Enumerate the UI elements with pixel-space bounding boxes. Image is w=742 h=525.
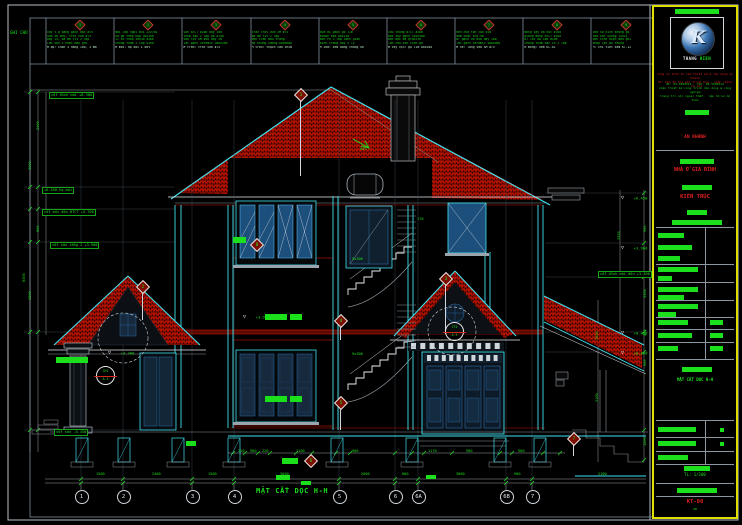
note-line: M ốp: chân 3 hàng 100, 3 mm: [47, 46, 113, 50]
level-marker: ▽ +0.450: [621, 325, 647, 341]
note-marker-diamond: 3: [211, 20, 222, 31]
field-bar: [710, 320, 723, 325]
note-marker-diamond: 4: [279, 20, 290, 31]
level-triangle-icon: ▽: [243, 314, 246, 320]
dim-label: 1200: [644, 437, 648, 446]
grid-bubble: 6A: [412, 490, 426, 504]
note-line: M: chi tiết xem KT-12: [593, 46, 659, 50]
dim-label: 3000: [456, 473, 465, 477]
field-bar: [680, 159, 714, 164]
note-cell: 9cửa sổ kính khung gỗhoa sắt vuông 14x14…: [593, 20, 659, 62]
elevation-note: cốt sân -0.450: [54, 429, 88, 436]
note-line: M mái: độ dốc i 60%: [115, 46, 181, 50]
dim-label: 9x300: [352, 258, 363, 262]
dim-label: 60%: [360, 148, 367, 152]
note-cell: 3sàn BTCT #200 dày 100thép sàn 2 lớp d8 …: [183, 20, 249, 62]
note-marker-diamond: 9: [620, 20, 631, 31]
grid-bubble: 6: [389, 490, 403, 504]
column-divider: [705, 420, 706, 464]
grid-bubble: 4: [228, 490, 242, 504]
drawing-category: KIẾN TRÚC: [654, 194, 736, 200]
field-bar: [658, 267, 698, 272]
dim-label: 3600: [280, 473, 289, 477]
column-divider: [705, 227, 706, 359]
field-bar: [658, 276, 672, 281]
dim-label: 1170: [428, 450, 437, 454]
field-bar: [682, 185, 712, 190]
note-cell: 6cầu thang BTCT #200bậc xây gạch 105x300…: [388, 20, 454, 62]
level-triangle-icon: ▽: [108, 350, 111, 356]
water-tank: [347, 174, 383, 198]
dim-label: 2000: [361, 473, 370, 477]
company-logo-text: THANG HIEN: [671, 56, 723, 61]
dim-label: 170: [417, 218, 424, 222]
elevation-note: +6.450 hạ mái: [42, 187, 74, 194]
dim-label: 2100: [596, 393, 600, 402]
field-bar: [658, 287, 698, 292]
field-bar: [684, 466, 710, 471]
row-separator: [656, 483, 734, 484]
row-separator: [656, 300, 734, 301]
company-logo-icon: K: [681, 22, 715, 56]
level-marker: ▽ +3.900: [243, 309, 269, 325]
note-marker-diamond: 1: [74, 20, 85, 31]
note-line: M móng: xem KC-01: [524, 46, 590, 50]
dim-label: 2400: [152, 473, 161, 477]
sheet-sub-number: 08: [654, 508, 736, 511]
row-separator: [656, 227, 734, 228]
dim-label: 2400: [37, 121, 41, 130]
company-info-green: đt: 04.5584512 - fax: 04.5584512nhận thi…: [657, 83, 733, 102]
elevation-note: cốt mái đón BTCT +5.700: [42, 209, 96, 216]
sheet-number: KT-08: [654, 499, 736, 505]
dim-label: 220: [262, 450, 269, 454]
note-marker-diamond: 7: [484, 20, 495, 31]
grid-bubble: 7: [526, 490, 540, 504]
grid-bubble: 1: [75, 490, 89, 504]
dim-label: 1500: [596, 331, 600, 340]
dim-label: 560: [518, 450, 525, 454]
field-bar: [658, 233, 684, 238]
row-separator: [656, 451, 734, 452]
note-marker-diamond: 2: [143, 20, 154, 31]
dim-label: 8300: [23, 273, 27, 282]
callout-leader: [300, 98, 301, 176]
dim-label: 3300: [644, 289, 648, 298]
dim-label: 3300: [29, 161, 33, 170]
field-bar: [658, 455, 688, 460]
dim-label: 220: [238, 450, 245, 454]
project-name: NHÀ Ở GIA ĐÌNH: [654, 168, 736, 174]
row-separator: [656, 282, 734, 283]
note-cell: 1xây t.g bằng gạch đặc #75vữa XM #50, tr…: [47, 20, 113, 62]
elevation-note: cốt đỉnh mái +8.300: [49, 92, 94, 99]
dim-label: 900: [352, 450, 359, 454]
level-triangle-icon: ▽: [621, 350, 624, 356]
drawing-title: MẶT CẮT DỌC H-H: [654, 378, 736, 382]
field-bar: [710, 333, 723, 338]
note-cell: 7nền nhà tôn cao 450đầm chặt k=0.90BT gạ…: [456, 20, 522, 62]
level-marker: ▽ +6.450: [621, 190, 647, 206]
notes-grid: [30, 18, 660, 517]
dim-label: 1500: [208, 473, 217, 477]
note-line: M cửa: xem bảng thống kê: [320, 46, 386, 50]
note-cell: 5cửa đi pano gỗ limkhuôn kép 60x130sơn P…: [320, 20, 386, 62]
row-separator: [656, 496, 734, 497]
detail-callout-circle: CT5A-3: [445, 322, 464, 341]
field-bar: [658, 320, 688, 325]
dim-label: 3300: [29, 291, 33, 300]
check-dot: [720, 428, 724, 432]
detail-callout-circle: CH1A-3: [96, 366, 115, 385]
field-bar: [675, 9, 719, 14]
row-separator: [656, 359, 734, 360]
field-bar: [682, 367, 712, 372]
dim-label: 900: [644, 226, 648, 233]
dim-label: 800: [402, 473, 409, 477]
notes-header-label: GHI CHÚ: [10, 30, 28, 35]
field-bar: [658, 346, 678, 351]
dim-label: 2100: [598, 473, 607, 477]
logo-word-1: THANG: [683, 56, 697, 61]
title-block: K THANG HIEN công ty tnhh tư vấn thiết k…: [652, 5, 738, 519]
level-marker: ▽ +3.900: [621, 240, 647, 256]
level-triangle-icon: ▽: [621, 245, 624, 251]
chimney: [386, 76, 420, 161]
cad-sheet: GHI CHÚ 1xây t.g bằng gạch đặc #75vữa XM…: [0, 0, 742, 525]
row-separator: [656, 150, 734, 151]
level-marker: ▽ +3.300: [108, 345, 134, 361]
note-line: M trần: trát vữa #75: [183, 46, 249, 50]
field-bar: [658, 333, 692, 338]
row-separator: [656, 437, 734, 438]
row-separator: [656, 342, 734, 343]
field-bar: [658, 304, 698, 309]
dim-label: 900: [37, 226, 41, 233]
section-title: MẶT CẮT DỌC H-H: [256, 487, 328, 495]
dim-label: 900: [250, 450, 257, 454]
grid-bubble: 6B: [500, 490, 514, 504]
note-line: M tay vịn: gỗ lim 80x100: [388, 46, 454, 50]
field-bar: [658, 256, 680, 261]
dim-label: 1500: [96, 473, 105, 477]
elevation-note: cốt đỉnh mái đón +3.300: [598, 271, 652, 278]
row-separator: [656, 317, 734, 318]
check-dot: [720, 442, 724, 446]
grid-bubble: 3: [186, 490, 200, 504]
row-separator: [656, 264, 734, 265]
note-marker-diamond: 6: [415, 20, 426, 31]
field-bar: [658, 245, 692, 250]
elevation-note: cốt sàn tầng 2 +3.900: [50, 242, 99, 249]
dim-label: 900: [466, 450, 473, 454]
field-bar: [685, 110, 709, 115]
section-drawing-canvas[interactable]: [0, 0, 742, 525]
field-bar: [658, 427, 696, 432]
dim-label: 1100: [296, 450, 305, 454]
field-bar: [687, 210, 707, 215]
note-cell: 2mái lợp ngói mũi 22v/m2xà gồ thép hộp 5…: [115, 20, 181, 62]
grid-bubble: 2: [117, 490, 131, 504]
grid-bubble: 5: [333, 490, 347, 504]
dim-label: 9x300: [352, 353, 363, 357]
row-separator: [656, 464, 734, 465]
company-green-line: trang trí nội ngoại thất - lập hồ sơ dự …: [657, 95, 733, 103]
level-triangle-icon: ▽: [621, 195, 624, 201]
company-logo: K THANG HIEN: [670, 17, 724, 69]
note-cell: 8móng xây đá hộc #100giằng móng BTCT #20…: [524, 20, 590, 62]
project-owner: AN KHÁNH: [654, 136, 736, 141]
level-triangle-icon: ▽: [621, 330, 624, 336]
field-bar: [672, 220, 722, 225]
dim-label: 900: [514, 473, 521, 477]
note-marker-diamond: 8: [552, 20, 563, 31]
note-marker-diamond: 5: [347, 20, 358, 31]
drawing-scale: TL: 1/100: [654, 473, 736, 477]
note-line: M hè: láng vữa XM #75: [456, 46, 522, 50]
field-bar: [677, 488, 717, 493]
logo-word-2: HIEN: [700, 56, 711, 61]
level-marker: ▽ ±0.000: [621, 345, 647, 361]
dim-label: 2550: [618, 231, 622, 240]
note-cell: 4trần trát vữa XM #75bả ma tít 2 lớpsơn …: [252, 20, 318, 62]
field-bar: [710, 346, 723, 351]
note-line: M trần: thạch cao chìm: [252, 46, 318, 50]
row-separator: [656, 329, 734, 330]
row-separator: [656, 420, 734, 421]
field-bar: [658, 441, 696, 446]
